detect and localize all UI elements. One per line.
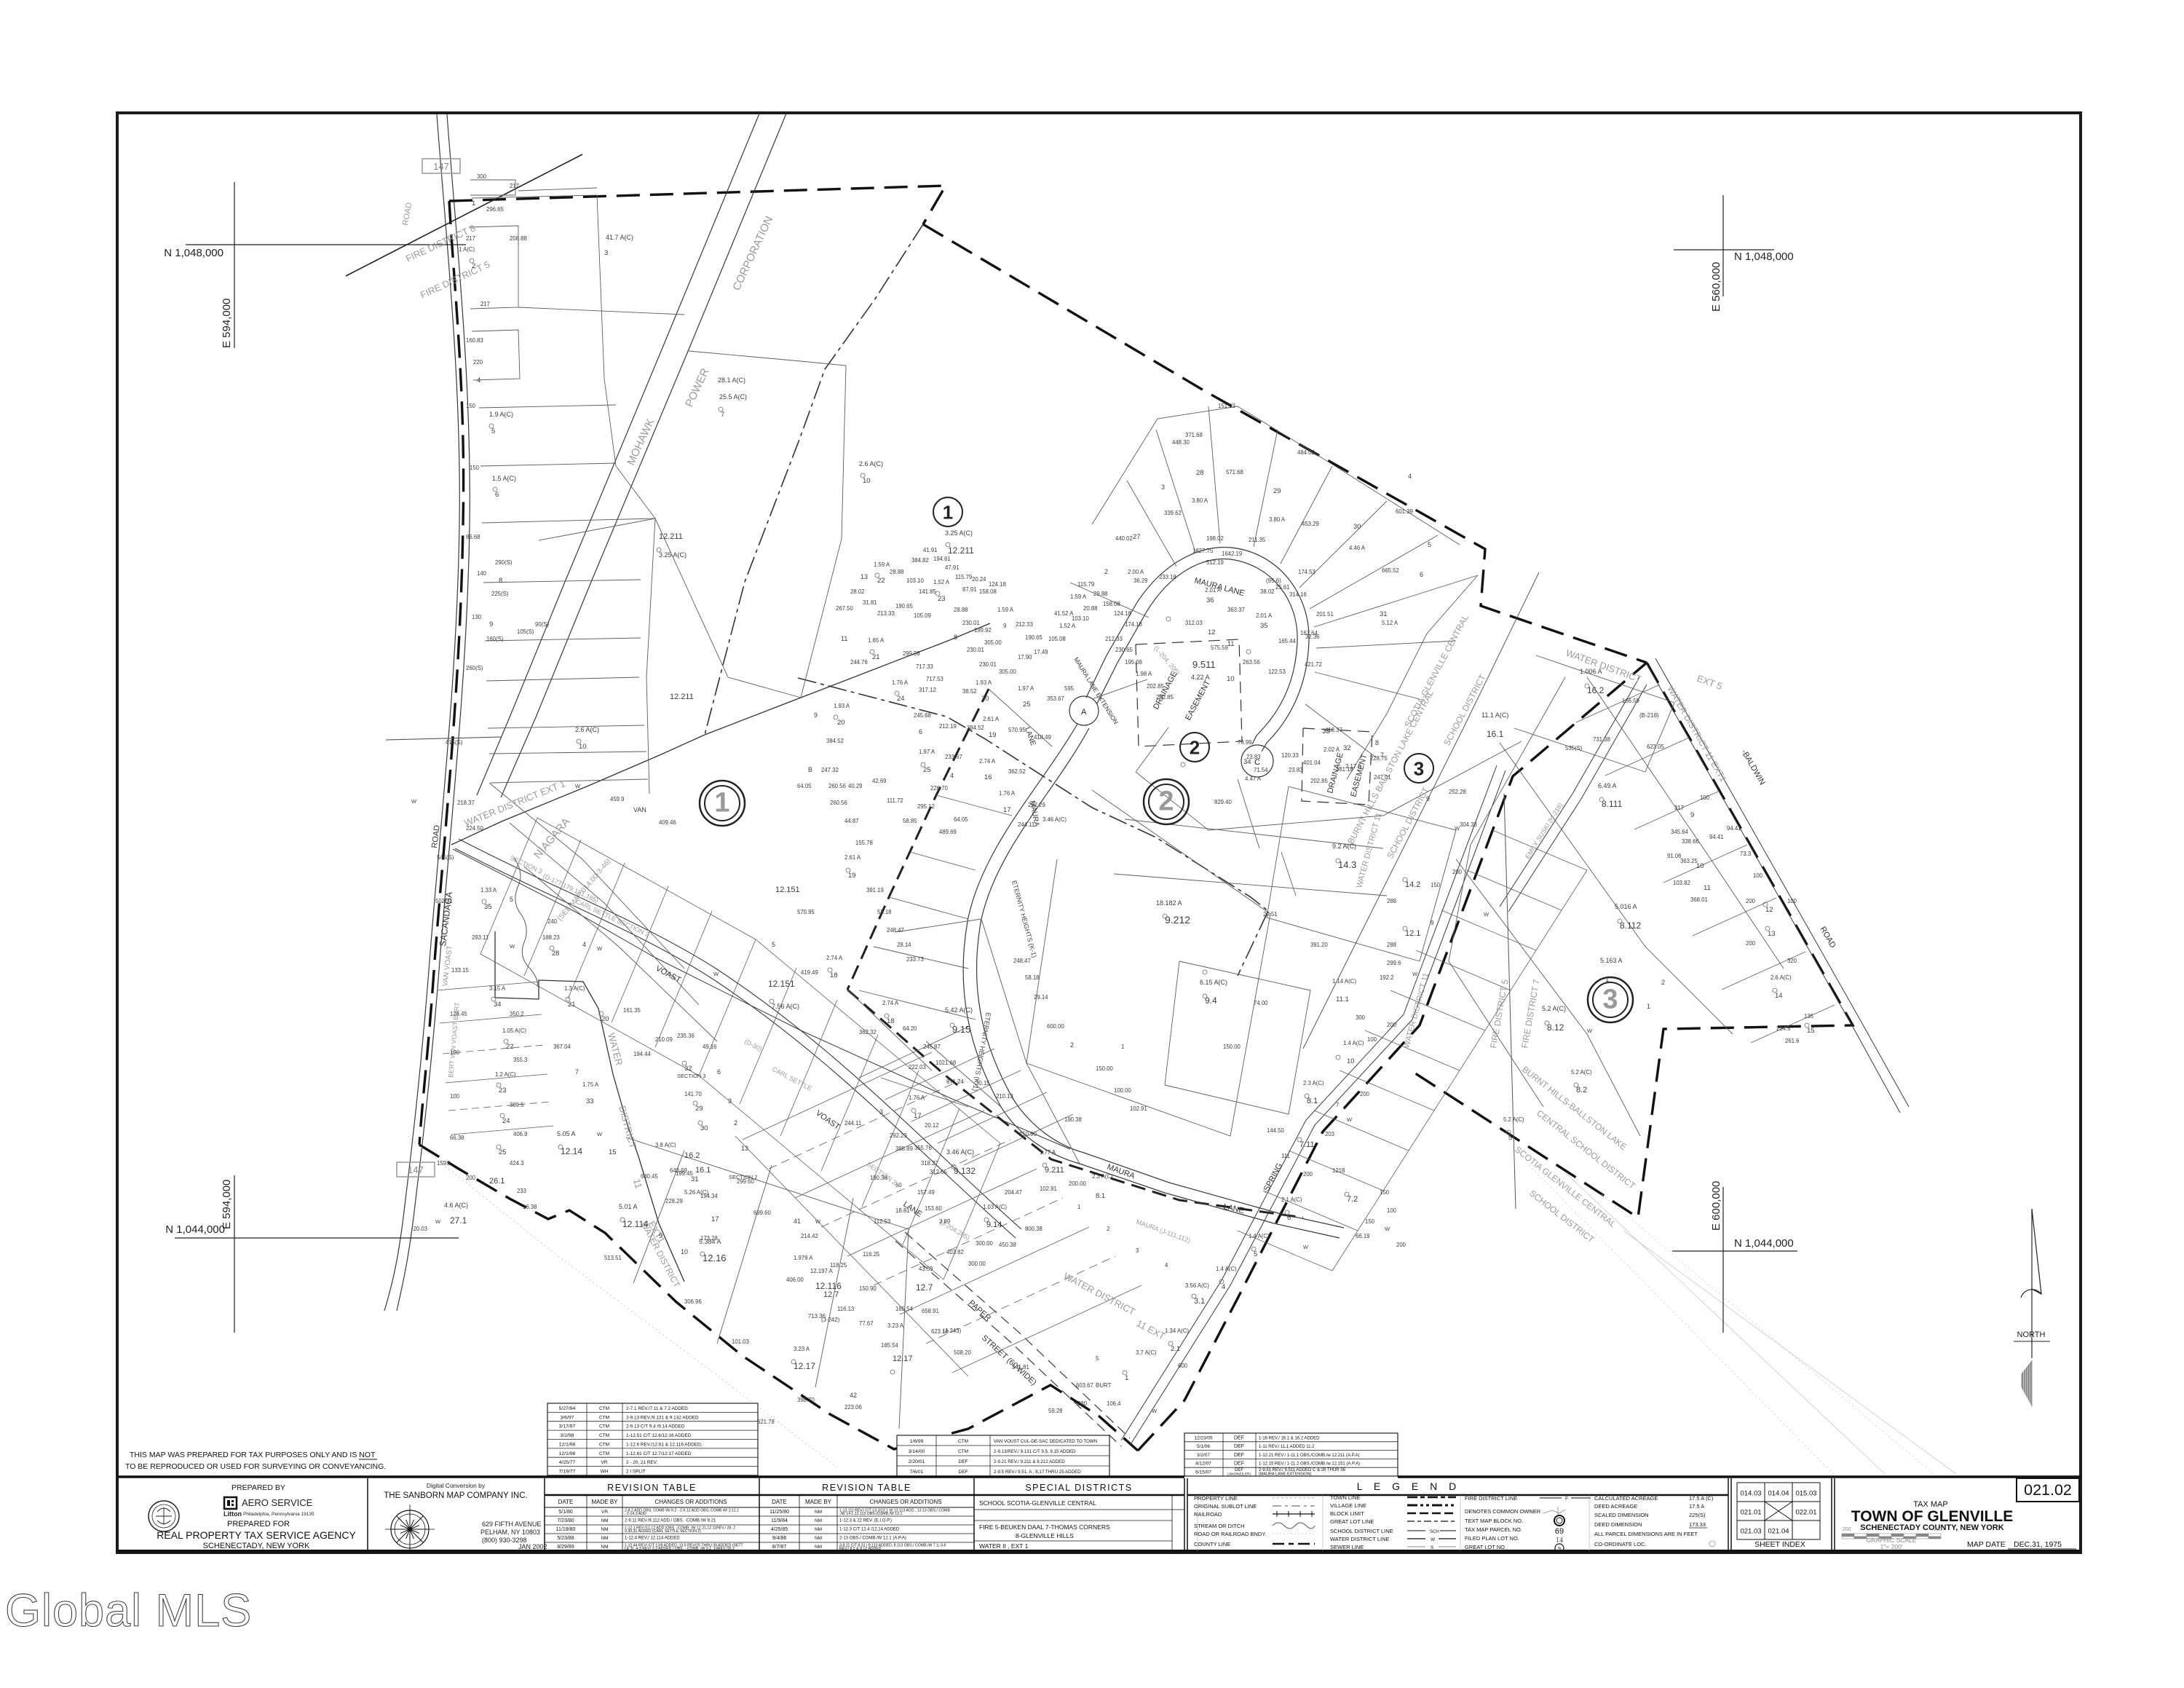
svg-text:23: 23 bbox=[499, 1086, 507, 1095]
svg-text:415(S): 415(S) bbox=[446, 739, 463, 746]
svg-text:235.36: 235.36 bbox=[677, 1033, 695, 1039]
svg-text:150: 150 bbox=[470, 465, 480, 471]
svg-text:, 2-14.3 ADD: , 2-14.3 ADD bbox=[625, 1512, 646, 1516]
svg-text:5.2 A(C): 5.2 A(C) bbox=[1571, 1069, 1592, 1076]
svg-text:1-12.61 C/T 12.7/12.17 ADDE: 1-12.61 C/T 12.7/12.17 ADDED bbox=[626, 1451, 692, 1456]
svg-text:23.83: 23.83 bbox=[1289, 767, 1303, 773]
svg-text:292.29: 292.29 bbox=[1028, 802, 1045, 808]
svg-text:94.41: 94.41 bbox=[1727, 825, 1741, 832]
svg-text:5/1/80: 5/1/80 bbox=[558, 1510, 573, 1515]
svg-text:SCH: SCH bbox=[1430, 1530, 1439, 1534]
svg-text:260.56: 260.56 bbox=[830, 800, 847, 806]
svg-text:2.3 A(C): 2.3 A(C) bbox=[1092, 1173, 1113, 1180]
svg-text:REV./ 8.2 & 8.12 ADDED: REV./ 8.2 & 8.12 ADDED bbox=[839, 1547, 882, 1551]
svg-text:35: 35 bbox=[1260, 622, 1268, 630]
svg-text:13: 13 bbox=[860, 573, 868, 580]
svg-text:9/4/86: 9/4/86 bbox=[772, 1536, 787, 1541]
svg-text:90(S): 90(S) bbox=[535, 621, 549, 628]
svg-text:210.09: 210.09 bbox=[655, 1036, 673, 1043]
svg-text:29: 29 bbox=[695, 1105, 703, 1113]
svg-text:E 594,000: E 594,000 bbox=[221, 299, 233, 348]
svg-text:2.3 A(C): 2.3 A(C) bbox=[1303, 1080, 1324, 1086]
svg-text:15: 15 bbox=[609, 1148, 617, 1156]
svg-text:VR: VR bbox=[601, 1510, 608, 1515]
svg-text:244.11: 244.11 bbox=[844, 1120, 861, 1127]
svg-text:66.38: 66.38 bbox=[450, 1135, 464, 1141]
svg-text:871.24: 871.24 bbox=[946, 1078, 965, 1085]
svg-text:1: 1 bbox=[1647, 1003, 1650, 1010]
svg-text:5/27/94: 5/27/94 bbox=[559, 1406, 576, 1411]
svg-text:717.53: 717.53 bbox=[926, 676, 943, 682]
svg-text:FILED PLAN LOT NO.: FILED PLAN LOT NO. bbox=[1465, 1535, 1519, 1542]
svg-text:8: 8 bbox=[954, 634, 957, 641]
svg-text:13: 13 bbox=[741, 1145, 748, 1152]
svg-text:1: 1 bbox=[472, 200, 475, 208]
svg-text:N 1,048,000: N 1,048,000 bbox=[1734, 251, 1794, 263]
svg-text:100: 100 bbox=[1787, 898, 1797, 904]
svg-text:20.88: 20.88 bbox=[1083, 605, 1098, 612]
svg-text:60: 60 bbox=[895, 1182, 902, 1188]
svg-text:1.03 A(C): 1.03 A(C) bbox=[983, 1204, 1007, 1210]
svg-text:103.10: 103.10 bbox=[906, 577, 925, 584]
svg-text:2.02 A: 2.02 A bbox=[1324, 746, 1340, 753]
svg-text:190.65: 190.65 bbox=[1025, 634, 1043, 641]
svg-text:30.15: 30.15 bbox=[976, 1080, 990, 1086]
svg-text:3.80 A: 3.80 A bbox=[1269, 516, 1286, 523]
svg-text:124.18: 124.18 bbox=[989, 581, 1006, 588]
svg-text:6: 6 bbox=[919, 728, 922, 735]
svg-text:NM: NM bbox=[601, 1518, 608, 1523]
svg-text:384.52: 384.52 bbox=[967, 725, 984, 731]
svg-text:ORIGINAL SUBLOT LINE: ORIGINAL SUBLOT LINE bbox=[1194, 1503, 1257, 1510]
svg-text:512.19: 512.19 bbox=[1206, 559, 1224, 566]
svg-text:263.56: 263.56 bbox=[1243, 659, 1260, 666]
svg-text:021.02: 021.02 bbox=[2024, 1481, 2072, 1499]
svg-text:22: 22 bbox=[877, 577, 885, 585]
svg-text:300: 300 bbox=[477, 173, 487, 180]
svg-text:13: 13 bbox=[1768, 930, 1776, 938]
svg-text:1.93 A: 1.93 A bbox=[834, 703, 850, 709]
svg-text:GREAT LOT NO.: GREAT LOT NO. bbox=[1465, 1544, 1506, 1550]
svg-text:320: 320 bbox=[1787, 958, 1797, 964]
svg-text:248.47: 248.47 bbox=[1013, 958, 1031, 964]
svg-text:1-12.51 C/T 12.6/12.16 ADDE: 1-12.51 C/T 12.6/12.16 ADDED bbox=[626, 1433, 692, 1438]
svg-text:25: 25 bbox=[499, 1148, 507, 1156]
svg-text:NM: NM bbox=[815, 1518, 822, 1523]
svg-text:157.49: 157.49 bbox=[917, 1189, 935, 1196]
svg-text:368.01: 368.01 bbox=[1690, 896, 1708, 903]
svg-text:10: 10 bbox=[681, 1248, 688, 1255]
svg-text:200: 200 bbox=[466, 1175, 476, 1181]
svg-text:41.91: 41.91 bbox=[923, 547, 938, 553]
svg-text:SPECIAL DISTRICTS: SPECIAL DISTRICTS bbox=[1025, 1483, 1132, 1493]
svg-text:49.16: 49.16 bbox=[703, 1044, 717, 1050]
svg-text:5: 5 bbox=[1096, 1355, 1099, 1362]
svg-text:2.1: 2.1 bbox=[1171, 1345, 1180, 1353]
svg-text:4: 4 bbox=[1408, 473, 1412, 480]
svg-text:202.85: 202.85 bbox=[1156, 694, 1174, 701]
svg-text:SHEET INDEX: SHEET INDEX bbox=[1754, 1540, 1805, 1549]
svg-text:388.89: 388.89 bbox=[895, 1145, 913, 1152]
svg-text:2.74 A: 2.74 A bbox=[882, 1000, 899, 1006]
svg-text:E 560,000: E 560,000 bbox=[1710, 262, 1722, 312]
svg-text:32.36: 32.36 bbox=[1305, 634, 1320, 640]
svg-text:TOWN LINE: TOWN LINE bbox=[1330, 1494, 1361, 1501]
svg-text:2.74 A: 2.74 A bbox=[979, 758, 996, 765]
svg-text:4: 4 bbox=[477, 376, 480, 384]
svg-text:9.132: 9.132 bbox=[954, 1166, 976, 1176]
svg-text:7: 7 bbox=[1336, 1102, 1339, 1108]
svg-text:398.70: 398.70 bbox=[797, 1397, 815, 1403]
svg-text:2-9.13 REV./9.131 & 9.132: 2-9.13 REV./9.131 & 9.132 ADDED bbox=[626, 1415, 699, 1420]
svg-text:20.12: 20.12 bbox=[925, 1122, 939, 1129]
svg-text:14.2: 14.2 bbox=[1405, 880, 1420, 889]
svg-text:DEF: DEF bbox=[1234, 1435, 1244, 1440]
svg-text:14.3: 14.3 bbox=[1338, 859, 1356, 870]
svg-text:8.1: 8.1 bbox=[1096, 1192, 1105, 1200]
svg-text:21: 21 bbox=[872, 653, 880, 661]
svg-text:17.5 A (C): 17.5 A (C) bbox=[1689, 1495, 1714, 1502]
svg-text:4/25/85: 4/25/85 bbox=[771, 1527, 788, 1532]
svg-text:228.29: 228.29 bbox=[665, 1198, 683, 1204]
svg-text:571.68: 571.68 bbox=[1226, 469, 1243, 476]
svg-text:130: 130 bbox=[472, 614, 482, 620]
svg-text:23: 23 bbox=[938, 595, 946, 603]
svg-text:11/19/80: 11/19/80 bbox=[556, 1527, 576, 1532]
svg-text:12/1/98: 12/1/98 bbox=[559, 1442, 576, 1447]
svg-text:SCALED DIMENSION: SCALED DIMENSION bbox=[1594, 1512, 1649, 1518]
svg-text:208.88: 208.88 bbox=[510, 235, 527, 242]
svg-text:244.76: 244.76 bbox=[850, 659, 868, 666]
svg-text:150.00: 150.00 bbox=[1223, 1044, 1241, 1050]
svg-text:MADE BY: MADE BY bbox=[591, 1499, 618, 1505]
svg-text:35: 35 bbox=[484, 903, 492, 911]
svg-text:W: W bbox=[575, 783, 581, 789]
svg-text:1218: 1218 bbox=[1332, 1167, 1345, 1174]
svg-text:204.47: 204.47 bbox=[1005, 1189, 1022, 1196]
svg-text:BURT: BURT bbox=[1096, 1382, 1112, 1389]
svg-text:9.211: 9.211 bbox=[1045, 1166, 1064, 1175]
svg-text:160(S): 160(S) bbox=[486, 636, 504, 642]
svg-text:26.1: 26.1 bbox=[489, 1177, 505, 1186]
svg-text:14: 14 bbox=[1556, 1537, 1563, 1545]
svg-text:5.12 A: 5.12 A bbox=[1382, 620, 1398, 626]
svg-text:363.25: 363.25 bbox=[1680, 858, 1698, 864]
svg-text:CTM: CTM bbox=[958, 1439, 968, 1444]
svg-text:16.1: 16.1 bbox=[1487, 729, 1504, 739]
svg-text:73.3: 73.3 bbox=[1740, 851, 1751, 857]
svg-text:459.9: 459.9 bbox=[610, 796, 625, 802]
svg-text:403.82: 403.82 bbox=[946, 1249, 964, 1255]
svg-text:418.49: 418.49 bbox=[1034, 734, 1051, 741]
svg-text:87.91: 87.91 bbox=[962, 586, 977, 593]
svg-text:0: 0 bbox=[1890, 1527, 1893, 1532]
svg-text:2-9.5 REV./ 9.51, A , 8,17: 2-9.5 REV./ 9.51, A , 8,17 THRU 25 ADDED bbox=[994, 1470, 1081, 1475]
svg-text:165.44: 165.44 bbox=[1278, 638, 1297, 644]
svg-text:1-12.6 REV./12.61 & 12.116: 1-12.6 REV./12.61 & 12.116 ADDED; bbox=[626, 1442, 703, 1447]
svg-text:7.2: 7.2 bbox=[1347, 1195, 1358, 1204]
svg-text:8.111: 8.111 bbox=[1602, 799, 1623, 809]
svg-text:601.39: 601.39 bbox=[1396, 508, 1413, 515]
svg-text:21: 21 bbox=[568, 1001, 576, 1009]
svg-text:2: 2 bbox=[1104, 568, 1108, 575]
svg-text:1827.75: 1827.75 bbox=[1192, 548, 1214, 554]
svg-text:6.49 A: 6.49 A bbox=[1598, 782, 1617, 789]
svg-text:1.2 A(C): 1.2 A(C) bbox=[495, 1071, 516, 1078]
svg-text:2-13 OBS./ COMB./W 12.1 (A.P.A: 2-13 OBS./ COMB./W 12.1 (A.P.A) bbox=[839, 1536, 906, 1540]
svg-text:240: 240 bbox=[547, 918, 558, 925]
svg-text:34: 34 bbox=[1243, 758, 1251, 766]
svg-text:Litton: Litton bbox=[223, 1510, 242, 1518]
svg-text:1642.19: 1642.19 bbox=[1222, 551, 1242, 557]
svg-text:401.04: 401.04 bbox=[1303, 760, 1321, 766]
svg-text:CTM: CTM bbox=[599, 1442, 609, 1447]
svg-text:2-9.13/REV./ 9.131 C/T 9.5,: 2-9.13/REV./ 9.131 C/T 9.5, 9.15 ADDED bbox=[994, 1449, 1076, 1454]
svg-text:1021.68: 1021.68 bbox=[935, 1060, 956, 1066]
svg-text:DEC.31, 1975: DEC.31, 1975 bbox=[2014, 1540, 2062, 1549]
svg-text:116.13: 116.13 bbox=[837, 1306, 854, 1312]
svg-text:5: 5 bbox=[1254, 1250, 1257, 1258]
svg-text:77.67: 77.67 bbox=[859, 1320, 874, 1327]
svg-text:28.1 A(C): 28.1 A(C) bbox=[718, 376, 745, 384]
svg-text:355.3: 355.3 bbox=[513, 1057, 528, 1063]
svg-text:406.9: 406.9 bbox=[513, 1131, 528, 1137]
svg-text:4/25/77: 4/25/77 bbox=[559, 1460, 576, 1465]
svg-text:12/23/05: 12/23/05 bbox=[1194, 1435, 1213, 1440]
svg-text:9: 9 bbox=[659, 1232, 662, 1239]
svg-text:3/6/97: 3/6/97 bbox=[561, 1415, 574, 1420]
svg-text:REVISION TABLE: REVISION TABLE bbox=[822, 1483, 911, 1493]
svg-text:ROAD OR RAILROAD BNDY.: ROAD OR RAILROAD BNDY. bbox=[1194, 1531, 1266, 1537]
svg-text:5.2 A(C): 5.2 A(C) bbox=[1542, 1005, 1566, 1012]
svg-text:153.60: 153.60 bbox=[925, 1205, 943, 1212]
svg-text:2.01 A: 2.01 A bbox=[1256, 612, 1273, 619]
svg-text:338.66: 338.66 bbox=[1682, 838, 1699, 845]
svg-text:CTM: CTM bbox=[599, 1424, 609, 1429]
svg-text:015.03: 015.03 bbox=[1795, 1490, 1816, 1498]
svg-text:021.03: 021.03 bbox=[1740, 1528, 1761, 1536]
svg-text:225(S): 225(S) bbox=[1689, 1512, 1706, 1518]
svg-text:7/19/77: 7/19/77 bbox=[559, 1470, 576, 1475]
svg-text:4.22 A: 4.22 A bbox=[1191, 674, 1210, 681]
svg-text:12.17: 12.17 bbox=[794, 1361, 815, 1371]
svg-text:28: 28 bbox=[552, 950, 560, 958]
svg-text:9.2 A(C): 9.2 A(C) bbox=[1332, 843, 1356, 850]
svg-text:SECTION 3: SECTION 3 bbox=[677, 1073, 706, 1079]
svg-text:260.56: 260.56 bbox=[828, 783, 846, 789]
svg-text:350.2: 350.2 bbox=[510, 1011, 524, 1017]
svg-text:2: 2 bbox=[1107, 1226, 1109, 1232]
svg-text:CTM: CTM bbox=[599, 1415, 609, 1420]
svg-text:1: 1 bbox=[1605, 976, 1609, 984]
svg-text:4: 4 bbox=[950, 772, 954, 779]
svg-text:419.49: 419.49 bbox=[801, 969, 818, 976]
svg-text:17: 17 bbox=[1003, 806, 1011, 814]
svg-text:44.87: 44.87 bbox=[844, 818, 859, 824]
svg-text:9: 9 bbox=[1426, 795, 1430, 802]
svg-text:150.90: 150.90 bbox=[1019, 1131, 1037, 1137]
svg-text:141.70: 141.70 bbox=[684, 1091, 703, 1097]
svg-text:N 1,044,000: N 1,044,000 bbox=[165, 1223, 225, 1236]
svg-text:1-12.15 REV./ 1-11.2 OBS./C: 1-12.15 REV./ 1-11.2 OBS./COMB./w 12.151… bbox=[1259, 1462, 1360, 1467]
svg-text:829.40: 829.40 bbox=[1214, 799, 1233, 805]
svg-text:9,30,31 ADDED (CARL SETTLE SEC: 9,30,31 ADDED (CARL SETTLE SECTION 2) bbox=[625, 1529, 701, 1534]
svg-text:1.97 A: 1.97 A bbox=[1018, 685, 1034, 692]
svg-text:102.91: 102.91 bbox=[1130, 1105, 1147, 1112]
svg-text:FIRE DISTRICT LINE: FIRE DISTRICT LINE bbox=[1465, 1495, 1517, 1502]
svg-text:1: 1 bbox=[1077, 1204, 1080, 1210]
svg-text:74.00: 74.00 bbox=[1254, 1000, 1268, 1006]
svg-text:1: 1 bbox=[1125, 1374, 1128, 1382]
svg-text:450.38: 450.38 bbox=[999, 1242, 1016, 1248]
svg-text:014.04: 014.04 bbox=[1768, 1490, 1789, 1498]
svg-text:151.63: 151.63 bbox=[1218, 403, 1235, 409]
svg-text:5.42 A(C): 5.42 A(C) bbox=[945, 1006, 973, 1014]
svg-text:233.18: 233.18 bbox=[1159, 574, 1176, 580]
svg-text:440.02: 440.02 bbox=[1115, 535, 1133, 542]
svg-text:150: 150 bbox=[1431, 882, 1441, 888]
svg-text:100: 100 bbox=[450, 1093, 460, 1100]
svg-text:CO-ORDINATE LOC.: CO-ORDINATE LOC. bbox=[1594, 1541, 1647, 1547]
svg-text:8: 8 bbox=[1375, 739, 1379, 746]
svg-text:190.38: 190.38 bbox=[870, 1175, 887, 1181]
svg-text:212.19: 212.19 bbox=[939, 723, 957, 730]
svg-text:228.75: 228.75 bbox=[1370, 755, 1388, 762]
svg-text:SECTION 2: SECTION 2 bbox=[729, 1174, 758, 1180]
svg-text:230.01: 230.01 bbox=[962, 620, 980, 626]
svg-text:713.36: 713.36 bbox=[808, 1313, 826, 1320]
svg-text:COUNTY LINE: COUNTY LINE bbox=[1194, 1541, 1230, 1547]
svg-text:W: W bbox=[1455, 825, 1460, 832]
svg-text:1.4 A(C): 1.4 A(C) bbox=[1216, 1266, 1237, 1272]
svg-text:16.1: 16.1 bbox=[695, 1166, 711, 1175]
svg-text:198.02: 198.02 bbox=[1206, 535, 1224, 542]
svg-text:150.00: 150.00 bbox=[1096, 1065, 1114, 1072]
svg-text:391.19: 391.19 bbox=[866, 887, 884, 894]
svg-text:3: 3 bbox=[1414, 757, 1424, 779]
svg-text:1.75 A: 1.75 A bbox=[582, 1081, 599, 1088]
svg-text:201.51: 201.51 bbox=[1316, 611, 1334, 618]
svg-text:230.01: 230.01 bbox=[979, 661, 997, 668]
svg-text:LE 3), 4-3 REV/ 3.2 ADDED / OB: LE 3), 4-3 REV/ 3.2 ADDED / OBS. - COMB.… bbox=[625, 1547, 735, 1551]
svg-text:W: W bbox=[1303, 1244, 1309, 1250]
svg-text:384.52: 384.52 bbox=[826, 738, 844, 744]
svg-text:42.69: 42.69 bbox=[872, 778, 887, 784]
svg-text:5: 5 bbox=[1428, 541, 1431, 548]
svg-text:225(S): 225(S) bbox=[491, 591, 509, 597]
svg-text:185.54: 185.54 bbox=[895, 1306, 914, 1312]
svg-text:12.7: 12.7 bbox=[823, 1290, 839, 1299]
svg-text:570.95: 570.95 bbox=[1008, 727, 1026, 733]
svg-text:SCHOOL DISTRICT LINE: SCHOOL DISTRICT LINE bbox=[1330, 1528, 1393, 1534]
svg-text:424.3: 424.3 bbox=[510, 1160, 524, 1167]
svg-text:1.006 A: 1.006 A bbox=[1580, 668, 1602, 675]
svg-text:600.00: 600.00 bbox=[1047, 1023, 1065, 1030]
svg-text:1: 1 bbox=[714, 787, 729, 818]
svg-text:1.5 A(C): 1.5 A(C) bbox=[492, 475, 516, 482]
svg-text:32: 32 bbox=[684, 1065, 692, 1073]
svg-text:25.61: 25.61 bbox=[1275, 584, 1290, 591]
svg-text:PREPARED FOR: PREPARED FOR bbox=[227, 1520, 290, 1529]
svg-text:421.72: 421.72 bbox=[1305, 661, 1322, 668]
svg-text:595: 595 bbox=[1064, 685, 1075, 692]
svg-text:448.30: 448.30 bbox=[1172, 439, 1190, 446]
svg-text:11: 11 bbox=[1704, 884, 1711, 892]
svg-text:25: 25 bbox=[923, 766, 931, 774]
svg-text:2.61 A: 2.61 A bbox=[844, 854, 861, 861]
svg-text:147: 147 bbox=[408, 1164, 424, 1175]
svg-text:3.46 A(C): 3.46 A(C) bbox=[946, 1148, 974, 1156]
svg-text:14: 14 bbox=[1775, 992, 1783, 1000]
svg-text:214.42: 214.42 bbox=[801, 1233, 818, 1239]
svg-text:12.1: 12.1 bbox=[1405, 929, 1420, 938]
svg-text:103.10: 103.10 bbox=[1072, 615, 1090, 622]
svg-text:1.59 A: 1.59 A bbox=[874, 561, 890, 568]
svg-text:233.67: 233.67 bbox=[945, 754, 962, 760]
svg-text:014.03: 014.03 bbox=[1740, 1490, 1761, 1498]
svg-text:312.03: 312.03 bbox=[1185, 620, 1203, 626]
svg-text:158.08: 158.08 bbox=[1103, 601, 1120, 607]
svg-text:1.59 A: 1.59 A bbox=[997, 607, 1014, 613]
svg-text:3: 3 bbox=[728, 1097, 732, 1105]
svg-text:124.18: 124.18 bbox=[1114, 610, 1131, 617]
svg-text:16.2: 16.2 bbox=[684, 1151, 700, 1160]
svg-text:DEF: DEF bbox=[959, 1459, 968, 1464]
svg-text:122.53: 122.53 bbox=[1268, 669, 1286, 675]
svg-text:11: 11 bbox=[1227, 640, 1234, 647]
svg-text:224.50: 224.50 bbox=[466, 825, 484, 832]
svg-text:100.00: 100.00 bbox=[1114, 1087, 1132, 1094]
svg-text:305.00: 305.00 bbox=[984, 639, 1002, 646]
svg-text:217: 217 bbox=[466, 235, 475, 242]
svg-text:222.03: 222.03 bbox=[909, 1064, 926, 1070]
svg-text:2.6 A(C): 2.6 A(C) bbox=[859, 460, 883, 468]
svg-text:267.50: 267.50 bbox=[836, 605, 854, 612]
svg-text:230.01: 230.01 bbox=[967, 647, 984, 653]
svg-text:DEF: DEF bbox=[959, 1470, 968, 1475]
svg-text:3.15 A: 3.15 A bbox=[489, 985, 506, 992]
svg-text:353.67: 353.67 bbox=[1047, 695, 1064, 702]
svg-text:190.65: 190.65 bbox=[895, 603, 914, 610]
svg-text:409.46: 409.46 bbox=[659, 819, 676, 826]
svg-text:200.00: 200.00 bbox=[1069, 1180, 1087, 1187]
svg-text:140: 140 bbox=[477, 570, 487, 577]
svg-text:345.64: 345.64 bbox=[1671, 829, 1689, 835]
svg-text:RAILROAD: RAILROAD bbox=[1194, 1511, 1222, 1518]
svg-text:DEF: DEF bbox=[1234, 1444, 1244, 1449]
svg-text:CTM: CTM bbox=[958, 1449, 968, 1454]
svg-text:28.14: 28.14 bbox=[897, 942, 911, 948]
svg-text:100: 100 bbox=[1700, 794, 1710, 801]
svg-text:43.59: 43.59 bbox=[919, 1266, 933, 1272]
svg-text:224.5: 224.5 bbox=[1776, 1025, 1791, 1032]
svg-text:2: 2 bbox=[734, 1119, 737, 1127]
svg-text:115.79: 115.79 bbox=[955, 574, 972, 580]
svg-text:1.77 A: 1.77 A bbox=[1040, 1149, 1056, 1156]
svg-text:300: 300 bbox=[1356, 1014, 1366, 1021]
svg-text:17: 17 bbox=[914, 1112, 922, 1120]
svg-text:3: 3 bbox=[1602, 984, 1618, 1014]
svg-text:PELHAM, NY 10803: PELHAM, NY 10803 bbox=[480, 1529, 540, 1536]
svg-text:16.2: 16.2 bbox=[1587, 685, 1605, 695]
svg-text:194.34: 194.34 bbox=[700, 1193, 719, 1199]
svg-text:58.18: 58.18 bbox=[877, 909, 892, 915]
svg-text:535(S): 535(S) bbox=[1565, 745, 1583, 752]
svg-text:200: 200 bbox=[1934, 1527, 1942, 1532]
svg-text:17.90: 17.90 bbox=[1018, 654, 1032, 660]
svg-text:2.00 A: 2.00 A bbox=[1128, 569, 1144, 575]
svg-text:6.15 A(C): 6.15 A(C) bbox=[1200, 979, 1227, 986]
